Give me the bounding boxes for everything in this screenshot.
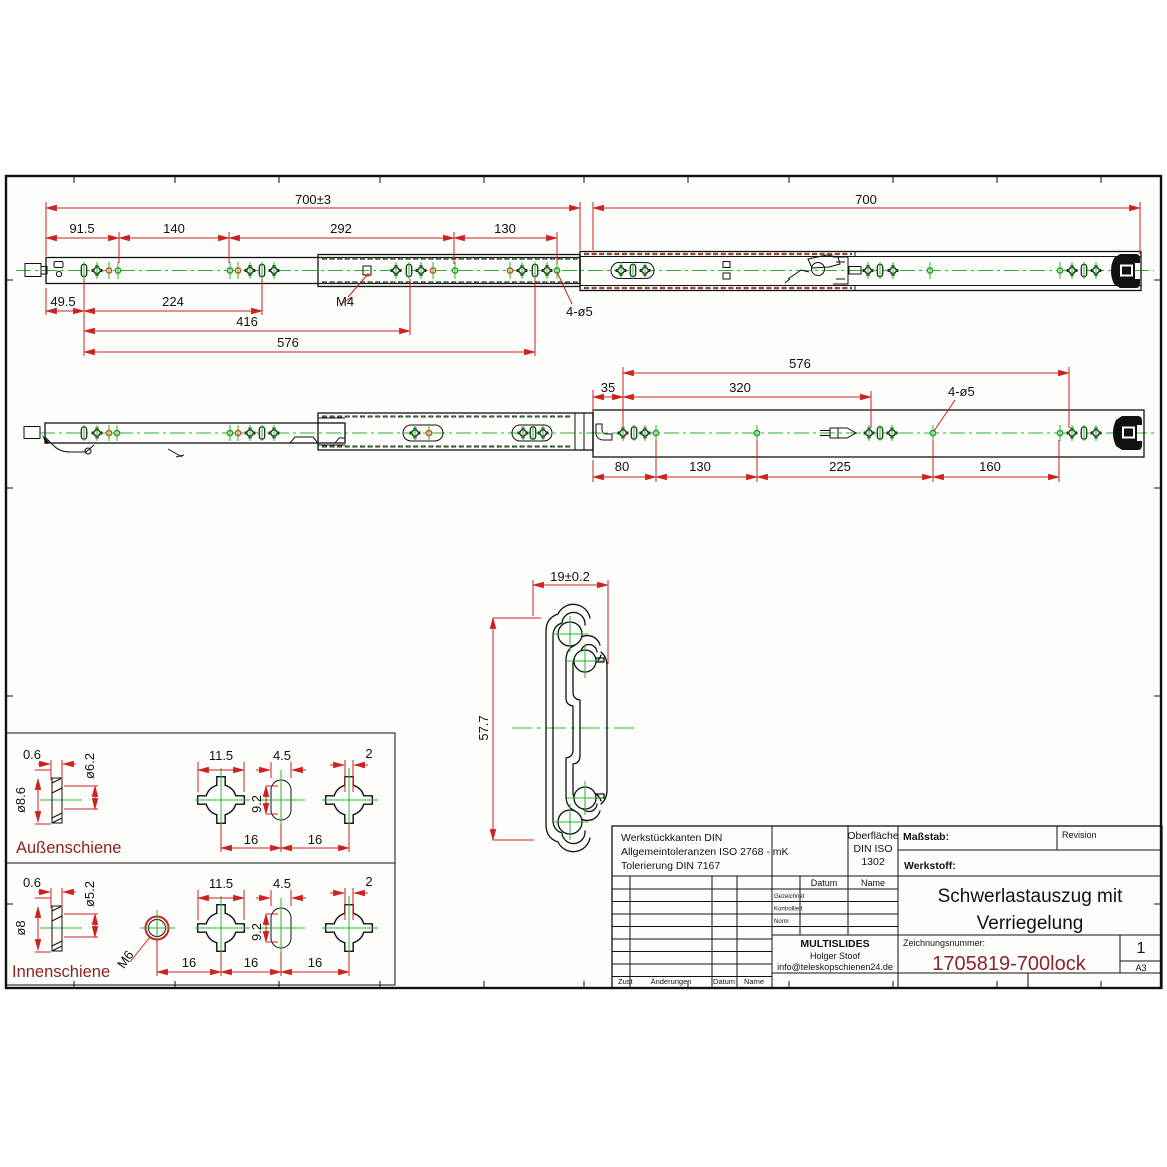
surface-line-3: 1302 [861,856,885,868]
dim-a-86: ø8.6 [13,787,28,813]
dim-mid-225: 225 [829,459,851,474]
drawing-sheet: 700±3 700 91.5 140 292 130 49.5 224 416 … [0,0,1167,1167]
dim-130: 130 [494,221,516,236]
dim-416: 416 [236,314,258,329]
label-aussenschiene: Außenschiene [16,839,122,857]
dim-i-16b: 16 [244,955,258,970]
dim-mid-35: 35 [601,380,615,395]
dim-mid-160: 160 [979,459,1001,474]
dim-i-52: ø5.2 [82,881,97,907]
dim-a-62: ø6.2 [82,753,97,779]
dim-a-16b: 16 [308,832,322,847]
sheet-number: 1 [1137,940,1146,957]
dim-mid-576: 576 [789,356,811,371]
masstab-label: Maßstab: [903,831,949,843]
dim-700: 700 [855,192,877,207]
revision-label: Revision [1062,830,1097,840]
drawing-number: 1705819-700lock [932,953,1086,975]
datum-header: Datum [811,878,838,888]
dim-a-45: 4.5 [273,748,291,763]
label-4-d5-mid: 4-ø5 [948,384,975,399]
dim-a-16a: 16 [244,832,258,847]
dim-i-2: 2 [365,874,372,889]
tol-line-3: Tolerierung DIN 7167 [621,860,720,872]
dim-a-115: 11.5 [209,748,233,763]
werkstoff-label: Werkstoff: [904,860,956,872]
row-gezeichnet: Gezeichnet [774,894,805,900]
dim-i-16c: 16 [308,955,322,970]
label-m4: M4 [336,294,354,309]
surface-line-2: DIN ISO [853,843,892,855]
drawing-title-line2: Verriegelung [977,913,1084,934]
dim-i-45: 4.5 [273,876,291,891]
surface-line-1: Oberfläche [847,830,899,842]
dim-292: 292 [330,221,352,236]
dim-19: 19±0.2 [550,569,590,584]
row-norm: Norm [774,919,789,925]
dim-i-8: ø8 [13,920,28,935]
datum2-label: Datum [713,977,735,986]
label-innenschiene: Innenschiene [12,963,110,981]
dim-a-2: 2 [365,746,372,761]
dim-i-92: 9.2 [249,923,264,941]
dim-a-06: 0.6 [23,747,41,762]
company-name: MULTISLIDES [800,938,869,950]
tol-line-2: Allgemeintoleranzen ISO 2768 - mK [621,846,789,858]
label-4-d5-top: 4-ø5 [566,304,593,319]
dim-a-92: 9.2 [249,795,264,813]
dim-i-06: 0.6 [23,875,41,890]
zust-label: Zust [618,977,634,986]
drawing-title-line1: Schwerlastauszug mit [938,886,1124,907]
dim-224: 224 [162,294,184,309]
technical-drawing: 700±3 700 91.5 140 292 130 49.5 224 416 … [0,0,1167,1167]
dim-i-16a: 16 [182,955,196,970]
tol-line-1: Werkstückkanten DIN [621,832,722,844]
email-link[interactable]: info@teleskopschienen24.de [777,962,893,972]
name-header: Name [861,878,885,888]
dim-49-5: 49.5 [50,294,75,309]
dim-mid-320: 320 [729,380,751,395]
dim-576: 576 [277,335,299,350]
dim-mid-80: 80 [615,459,629,474]
row-kontrolliert: Kontrolliert [774,907,803,913]
aenderungen-label: Änderungen [651,977,692,986]
paper-format: A3 [1135,963,1146,973]
name2-label: Name [744,977,764,986]
dim-91-5: 91.5 [69,221,94,236]
zeichnungsnummer-label: Zeichnungsnummer: [903,938,985,948]
dim-140: 140 [163,221,185,236]
dim-700-3: 700±3 [295,192,331,207]
author-name: Holger Stoof [810,951,861,961]
dim-mid-130: 130 [689,459,711,474]
dim-57-7: 57.7 [476,715,491,740]
dim-i-115: 11.5 [209,876,233,891]
